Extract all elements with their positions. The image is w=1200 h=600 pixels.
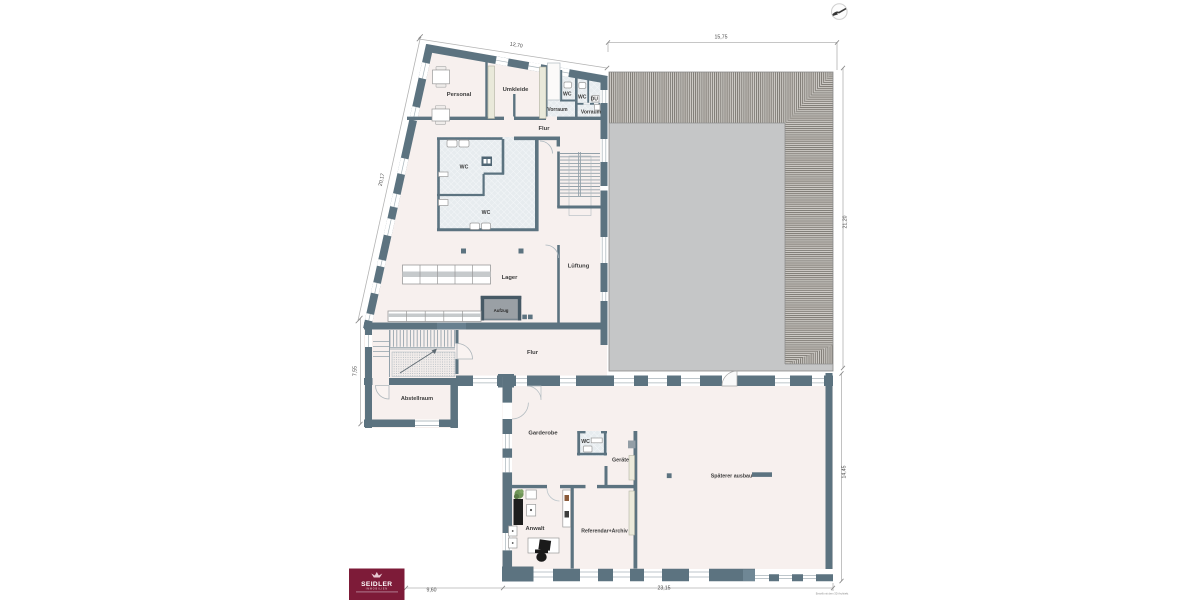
- svg-text:Abstellraum: Abstellraum: [401, 396, 433, 402]
- svg-text:Lager: Lager: [502, 275, 519, 281]
- svg-text:DU: DU: [591, 96, 599, 102]
- svg-text:WC: WC: [578, 94, 587, 100]
- svg-text:Vorraum: Vorraum: [581, 109, 602, 115]
- svg-text:WC: WC: [563, 91, 572, 97]
- svg-text:IMMOBILIEN: IMMOBILIEN: [366, 588, 388, 591]
- svg-text:20,17: 20,17: [378, 173, 387, 187]
- svg-text:14,45: 14,45: [842, 465, 848, 478]
- svg-text:Späterer ausbau: Späterer ausbau: [711, 474, 753, 480]
- svg-text:Umkleide: Umkleide: [503, 87, 530, 93]
- svg-text:Personal: Personal: [447, 92, 472, 98]
- svg-text:Garderobe: Garderobe: [528, 431, 558, 437]
- svg-text:WC: WC: [460, 164, 469, 170]
- svg-text:9,60: 9,60: [426, 587, 436, 593]
- svg-text:Lüftung: Lüftung: [568, 263, 590, 269]
- svg-text:7,55: 7,55: [353, 366, 359, 376]
- svg-text:Flur: Flur: [527, 350, 539, 356]
- svg-text:WC: WC: [482, 210, 491, 216]
- svg-text:12,70: 12,70: [509, 41, 523, 49]
- svg-text:WC: WC: [581, 439, 590, 445]
- svg-text:Vorraum: Vorraum: [547, 107, 568, 113]
- svg-text:Flur: Flur: [539, 126, 551, 132]
- svg-text:23,15: 23,15: [658, 586, 671, 592]
- svg-text:Referendar+Archiv: Referendar+Archiv: [581, 529, 628, 535]
- svg-text:Erstellt mit dem 3D Architekt: Erstellt mit dem 3D Architekt: [816, 592, 849, 596]
- svg-text:21,20: 21,20: [842, 215, 848, 228]
- svg-text:Geräte: Geräte: [612, 458, 629, 464]
- svg-text:15,75: 15,75: [715, 35, 728, 41]
- svg-text:Aufzug: Aufzug: [494, 308, 509, 313]
- svg-text:Anwalt: Anwalt: [525, 526, 544, 532]
